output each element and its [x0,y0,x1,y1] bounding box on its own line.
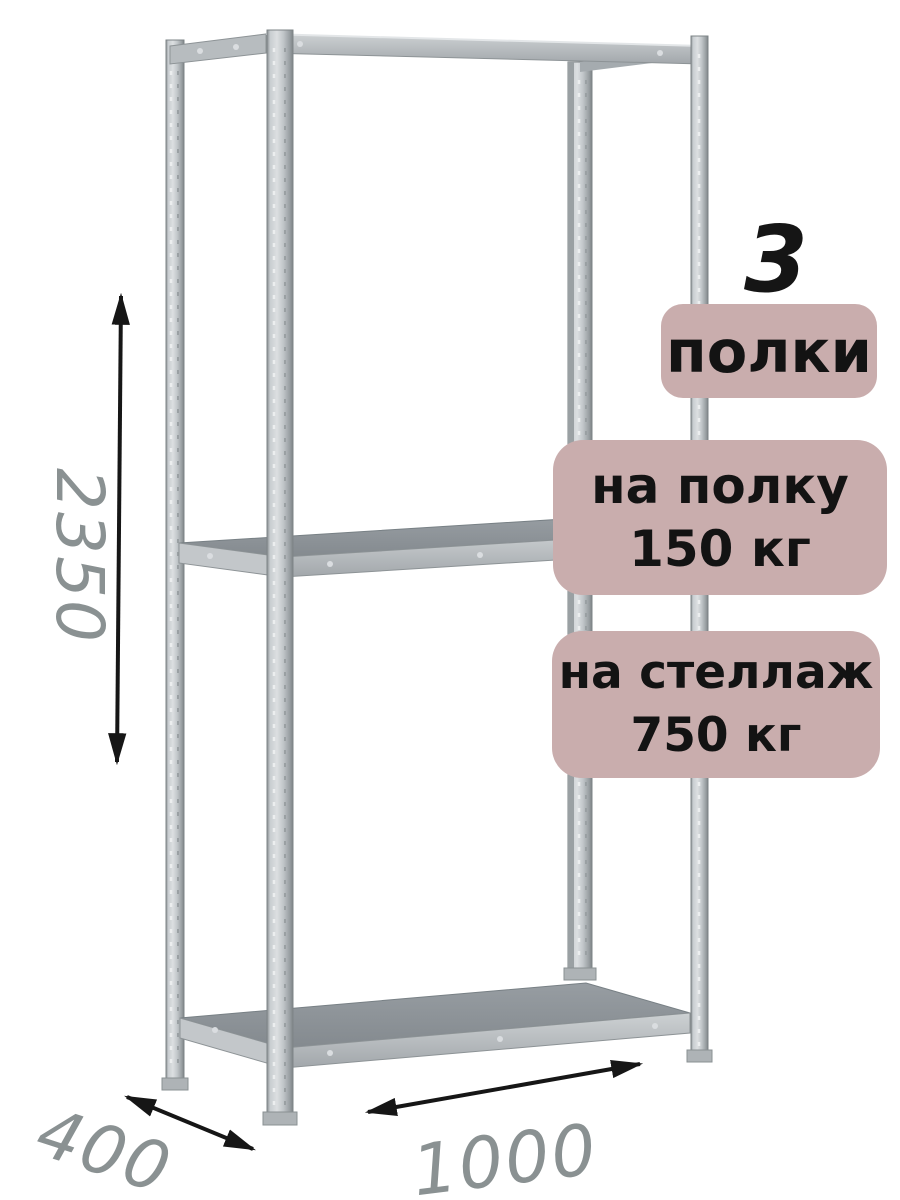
bottom-shelf [180,983,690,1068]
shelf-count-badge: полки [661,304,877,398]
per-rack-load-label: на стеллаж [552,642,880,704]
shelf-count-number: 3 [726,212,826,312]
back-left-post [162,40,188,1090]
product-image: 2350 400 1000 3 полки на полку 150 кг на… [0,0,900,1200]
height-dimension-label: 2350 [41,468,118,644]
per-rack-load-badge: на стеллаж 750 кг [552,631,880,778]
per-shelf-load-label: на полку [553,455,887,518]
width-dimension-label: 1000 [408,1108,603,1200]
width-dimension: 1000 [368,1064,640,1200]
height-dimension: 2350 [41,296,121,762]
per-rack-load-value: 750 кг [552,705,880,767]
per-shelf-load-badge: на полку 150 кг [553,440,887,595]
per-shelf-load-value: 150 кг [553,518,887,581]
front-left-post [263,30,297,1125]
shelving-unit-illustration: 2350 400 1000 [0,0,900,1200]
shelf-count-label: полки [661,317,877,386]
width-dimension-arrow [368,1064,640,1112]
depth-dimension: 400 [27,1093,253,1200]
top-shelf [170,34,702,64]
